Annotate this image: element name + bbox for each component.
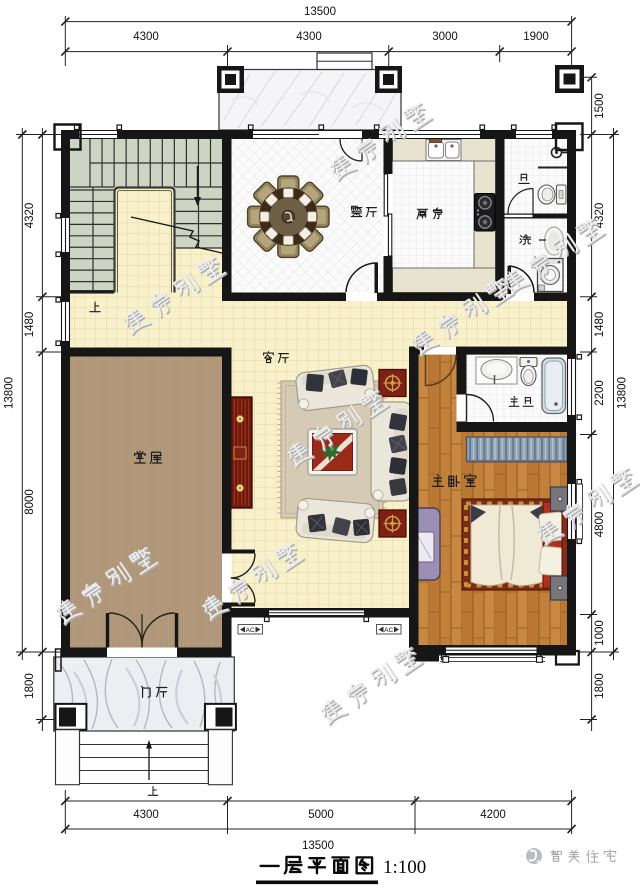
svg-text:1480: 1480: [594, 312, 606, 338]
svg-text:13800: 13800: [4, 377, 16, 409]
svg-text:AC: AC: [246, 627, 255, 634]
svg-text:1:100: 1:100: [383, 857, 426, 878]
svg-text:1800: 1800: [24, 673, 36, 699]
svg-text:4800: 4800: [594, 512, 606, 538]
svg-text:4300: 4300: [133, 809, 159, 821]
svg-text:1900: 1900: [523, 31, 549, 43]
svg-text:4200: 4200: [480, 809, 506, 821]
svg-text:1800: 1800: [594, 673, 606, 699]
svg-text:3000: 3000: [432, 31, 458, 43]
svg-text:1500: 1500: [594, 93, 606, 119]
svg-text:2200: 2200: [594, 380, 606, 406]
svg-text:4300: 4300: [133, 31, 159, 43]
svg-text:1000: 1000: [594, 620, 606, 646]
svg-text:13500: 13500: [304, 6, 336, 18]
svg-text:13500: 13500: [302, 840, 334, 852]
svg-text:4300: 4300: [296, 31, 322, 43]
svg-text:1480: 1480: [24, 312, 36, 338]
svg-text:8000: 8000: [24, 489, 36, 515]
svg-text:13800: 13800: [617, 377, 629, 409]
svg-text:4320: 4320: [24, 203, 36, 229]
svg-text:AC: AC: [384, 627, 393, 634]
svg-text:5000: 5000: [308, 809, 334, 821]
